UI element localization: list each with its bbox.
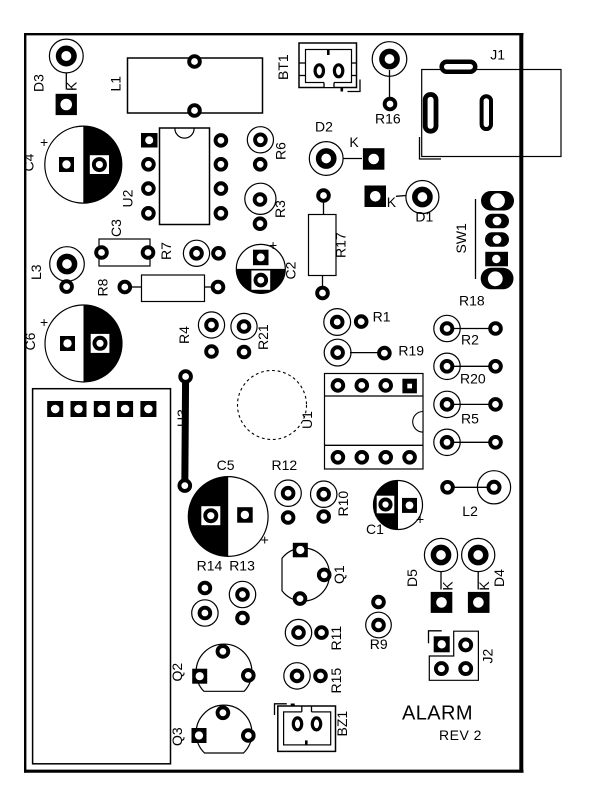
svg-text:+: + (40, 134, 48, 150)
svg-text:K: K (64, 81, 80, 91)
svg-text:R2: R2 (461, 332, 479, 348)
svg-text:R5: R5 (461, 411, 479, 427)
svg-text:R12: R12 (272, 457, 298, 473)
svg-text:C2: C2 (283, 261, 299, 279)
svg-text:+: + (40, 314, 48, 330)
svg-text:R21: R21 (255, 324, 271, 350)
svg-text:J2: J2 (480, 649, 496, 664)
svg-text:K: K (476, 581, 492, 591)
svg-text:R17: R17 (333, 232, 349, 258)
svg-text:R11: R11 (328, 626, 344, 651)
svg-text:U2: U2 (120, 189, 136, 207)
svg-text:R1: R1 (373, 309, 391, 325)
svg-text:L2: L2 (462, 503, 478, 519)
svg-text:R16: R16 (375, 111, 401, 127)
svg-text:ALARM: ALARM (402, 702, 473, 724)
svg-text:+: + (416, 511, 424, 527)
svg-text:R3: R3 (272, 200, 288, 218)
svg-text:K: K (349, 134, 359, 150)
svg-text:C6: C6 (22, 332, 38, 350)
svg-text:D4: D4 (491, 569, 507, 587)
svg-text:Q1: Q1 (331, 565, 347, 584)
svg-text:D5: D5 (404, 569, 420, 587)
svg-text:C5: C5 (217, 457, 235, 473)
svg-text:R9: R9 (370, 636, 388, 652)
svg-text:D2: D2 (315, 119, 333, 135)
svg-text:REV 2: REV 2 (439, 727, 482, 743)
svg-text:C3: C3 (108, 219, 124, 237)
svg-text:L3: L3 (28, 264, 44, 280)
svg-text:R20: R20 (460, 371, 486, 387)
svg-text:U1: U1 (299, 411, 315, 429)
svg-text:R18: R18 (459, 293, 485, 309)
svg-text:R7: R7 (158, 242, 174, 260)
svg-text:L1: L1 (108, 76, 124, 92)
svg-text:C1: C1 (366, 521, 384, 537)
svg-text:K: K (387, 194, 397, 210)
svg-text:J1: J1 (490, 47, 505, 63)
svg-text:D3: D3 (31, 74, 47, 92)
svg-text:R6: R6 (273, 142, 289, 160)
svg-text:+: + (269, 237, 277, 253)
svg-text:+: + (261, 532, 269, 548)
svg-text:BT1: BT1 (275, 54, 291, 80)
svg-text:SW1: SW1 (453, 223, 469, 254)
svg-text:R13: R13 (229, 558, 255, 574)
svg-text:R19: R19 (398, 343, 424, 359)
svg-text:R15: R15 (328, 668, 344, 694)
svg-text:Q2: Q2 (169, 663, 185, 682)
svg-text:R8: R8 (95, 278, 111, 296)
svg-text:Q3: Q3 (169, 727, 185, 746)
svg-text:BZ1: BZ1 (334, 711, 350, 737)
svg-text:R14: R14 (197, 558, 223, 574)
svg-text:C4: C4 (21, 153, 37, 171)
svg-text:K: K (439, 581, 455, 591)
svg-text:R4: R4 (176, 326, 192, 344)
svg-text:D1: D1 (415, 209, 433, 225)
svg-text:R10: R10 (335, 491, 351, 517)
